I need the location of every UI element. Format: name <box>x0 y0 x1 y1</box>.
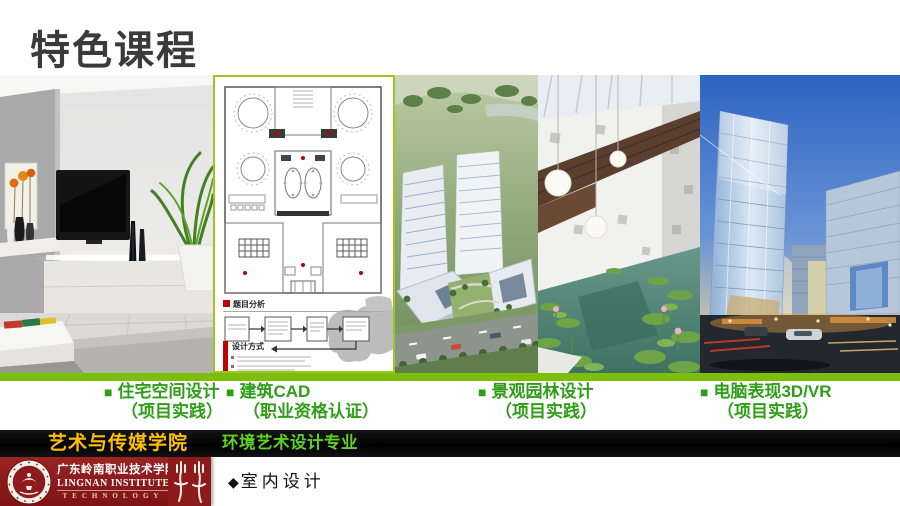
image-cad-floor-plan: 题目分析 设计方式 <box>213 75 395 373</box>
course-note: （项目实践） <box>700 402 832 422</box>
course-name: 建筑CAD <box>239 382 310 401</box>
college-name: 艺术与传媒学院 <box>48 430 188 457</box>
footer: 广东岭南职业技术学院 LINGNAN INSTITUTE OF TECHNOLO… <box>0 457 900 506</box>
presentation-slide: 特色课程 <box>0 0 900 506</box>
square-bullet-icon: ■ <box>104 384 112 400</box>
square-bullet-icon: ■ <box>478 384 486 400</box>
atrium-render-graphic <box>538 75 700 373</box>
art-college-brush-logo-icon <box>168 457 211 506</box>
course-label-cad: ■建筑CAD （职业资格认证） <box>226 382 379 422</box>
school-logo-block: 广东岭南职业技术学院 LINGNAN INSTITUTE OF TECHNOLO… <box>0 457 211 506</box>
school-name-en-line1: LINGNAN INSTITUTE OF <box>57 478 169 489</box>
interior-render-graphic <box>0 75 213 373</box>
image-3d-vr-tower <box>700 75 900 373</box>
course-name: 住宅空间设计 <box>117 382 219 401</box>
green-divider-bar <box>0 373 900 381</box>
school-name-en-line2: TECHNOLOGY <box>57 490 169 500</box>
square-bullet-icon: ■ <box>700 384 708 400</box>
square-bullet-icon: ■ <box>226 384 234 400</box>
course-label-landscape: ■景观园林设计 （项目实践） <box>478 382 597 422</box>
image-atrium-pond <box>538 75 700 373</box>
image-landscape-aerial <box>395 75 538 373</box>
course-name-line: ■建筑CAD <box>226 382 379 402</box>
department-banner: 艺术与传媒学院 环境艺术设计专业 <box>0 430 900 457</box>
cad-analysis-text: 题目分析 <box>233 300 265 309</box>
cad-method-red-bar <box>223 341 228 371</box>
course-name: 电脑表现3D/VR <box>713 382 831 401</box>
red-square-bullet <box>223 300 230 307</box>
section-label-text: 室内设计 <box>241 472 325 491</box>
diamond-bullet-icon: ◆ <box>228 476 239 491</box>
image-residential-interior <box>0 75 213 373</box>
course-note: （职业资格认证） <box>226 402 379 422</box>
cad-plan-graphic <box>215 77 393 371</box>
cad-method-heading: 设计方式 <box>232 342 264 351</box>
cad-analysis-underline <box>223 311 385 312</box>
course-note: （项目实践） <box>104 402 223 422</box>
course-name-line: ■住宅空间设计 <box>104 382 223 402</box>
major-name: 环境艺术设计专业 <box>222 430 358 457</box>
school-seal-icon <box>6 459 52 505</box>
course-note: （项目实践） <box>478 402 597 422</box>
course-name-line: ■景观园林设计 <box>478 382 597 402</box>
course-label-residential: ■住宅空间设计 （项目实践） <box>104 382 223 422</box>
school-name-block: 广东岭南职业技术学院 LINGNAN INSTITUTE OF TECHNOLO… <box>57 461 169 500</box>
page-title: 特色课程 <box>30 18 198 76</box>
course-label-3d-vr: ■电脑表现3D/VR （项目实践） <box>700 382 832 422</box>
cad-analysis-heading: 题目分析 <box>223 300 265 309</box>
course-name: 景观园林设计 <box>491 382 593 401</box>
tower-render-graphic <box>700 75 900 373</box>
aerial-render-graphic <box>395 75 538 373</box>
school-name-cn: 广东岭南职业技术学院 <box>57 461 169 477</box>
section-label: ◆室内设计 <box>228 457 325 506</box>
course-name-line: ■电脑表现3D/VR <box>700 382 832 402</box>
